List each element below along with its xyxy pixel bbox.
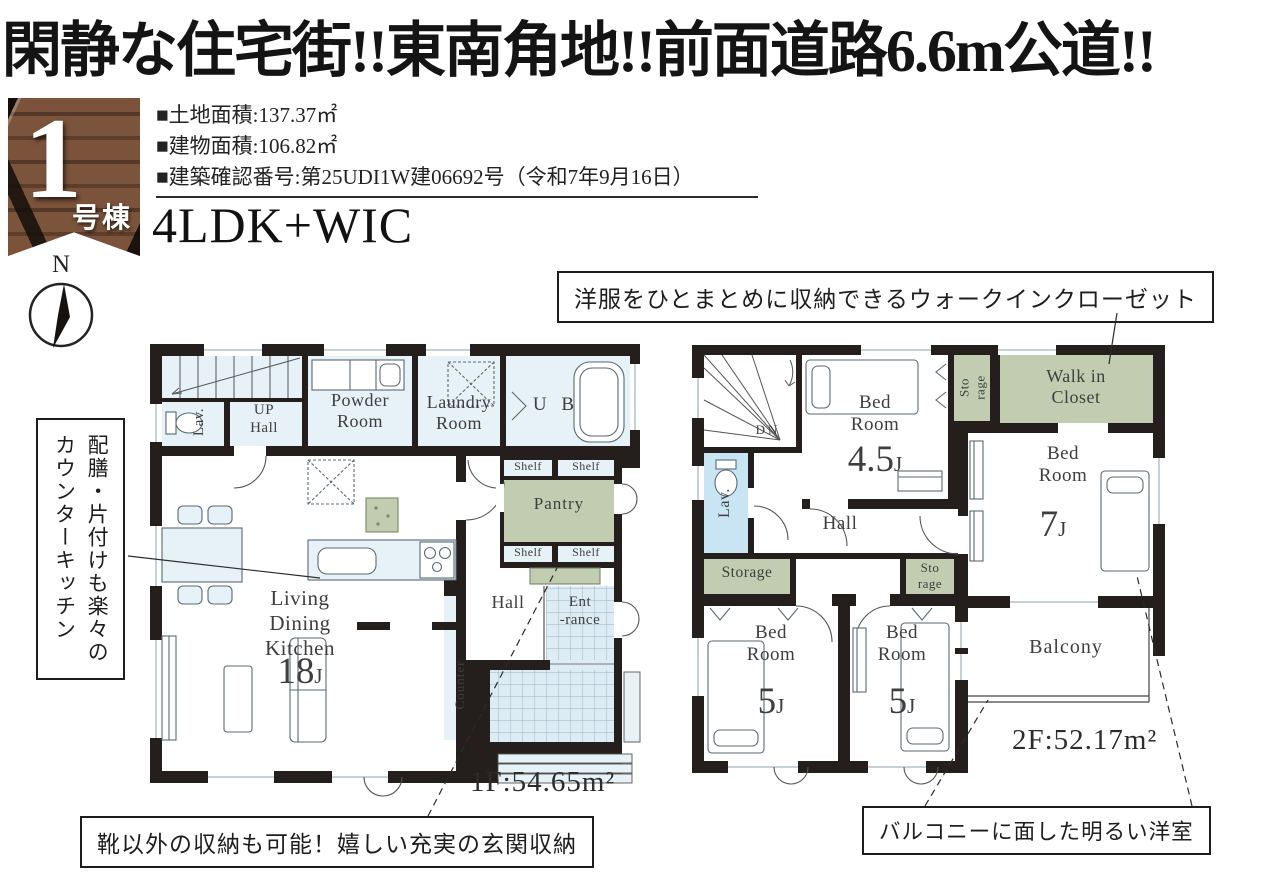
callout-counter-kitchen-line2: カウンターキッチン [48,434,81,664]
callout-bright-room: バルコニーに面した明るい洋室 [862,806,1211,855]
floor-plan-1f: Lav. UP Hall Powder Room Laundry Room U … [150,336,642,801]
label-entrance-l2: -rance [548,612,612,630]
area-1f: 1F:54.65m² [470,766,615,799]
compass-icon [26,277,96,355]
flyer-page: 閑静な住宅街!!東南角地!!前面道路6.6m公道!! 1 号棟 ■土地面積:13… [0,0,1280,889]
size-7-unit: J [1058,517,1066,541]
size-5l-number: 5 [758,681,777,722]
label-hall-2f: Hall [800,513,880,535]
property-specs: ■土地面積:137.37㎡ ■建物面積:106.82㎡ ■建築確認番号:第25U… [156,100,758,198]
label-ub: U B [506,394,606,416]
label-storage-left: Storage [704,564,790,582]
callout-walk-in-closet: 洋服をひとまとめに収納できるウォークインクローゼット [557,271,1214,323]
label-shelf-br: Shelf [558,545,614,559]
label-entrance-l1: Ent [548,594,612,612]
label-powder-room: Powder Room [308,390,412,432]
ldk-size-number: 18 [277,651,314,692]
label-lav-1f: Lav. [191,397,231,447]
label-bedroom-5l: Bed Room [736,622,806,667]
label-lav-2f: Lav. [716,478,736,528]
spec-land-area: ■土地面積:137.37㎡ [156,100,758,131]
label-walk-in-closet: Walk in Closet [1021,366,1131,408]
label-counter: Counter [452,640,472,730]
headline: 閑静な住宅街!!東南角地!!前面道路6.6m公道!! [2,2,1280,89]
floor-plan-2f: DN Bed Room 4.5J Sto rage Walk in Closet… [688,338,1168,790]
size-7-number: 7 [1040,504,1059,545]
label-shelf-tl: Shelf [504,459,552,473]
compass-north-label: N [26,252,96,277]
callout-counter-kitchen: 配膳・片付けも楽々の カウンターキッチン [36,418,125,680]
label-balcony: Balcony [986,636,1146,660]
label-size-5c: 5J [847,680,957,724]
size-5c-unit: J [907,694,915,718]
area-2f: 2F:52.17m² [1012,724,1157,757]
label-ldk-size: 18J [245,650,355,694]
label-bedroom-5c: Bed Room [867,622,937,667]
label-shelf-tr: Shelf [558,459,614,473]
label-bedroom-7: Bed Room [1028,443,1098,488]
label-size-45: 4.5J [820,438,930,482]
label-up-hall: UP Hall [228,402,300,437]
callout-counter-kitchen-line1: 配膳・片付けも楽々の [81,434,114,664]
size-45-unit: J [894,452,902,476]
label-bedroom-45: Bed Room [840,392,910,437]
label-up: UP [228,402,300,420]
spec-building-area: ■建物面積:106.82㎡ [156,131,758,162]
label-storage-mid: Sto rage [912,560,948,591]
label-up-hall-text: Hall [228,420,300,438]
label-dn: DN [746,422,790,437]
ldk-size-unit: J [314,664,322,688]
compass: N [26,252,96,360]
callout-entrance-storage: 靴以外の収納も可能！嬉しい充実の玄関収納 [80,816,594,868]
size-45-number: 4.5 [848,439,894,480]
label-shelf-bl: Shelf [504,545,552,559]
size-5c-number: 5 [889,681,908,722]
label-hall-1f: Hall [468,592,548,613]
label-size-5l: 5J [716,680,826,724]
label-entrance: Ent -rance [548,594,612,629]
building-badge: 1 号棟 [8,98,140,256]
label-storage-top: Sto rage [956,371,987,405]
layout-type: 4LDK+WIC [152,196,413,254]
spec-permit-number: ■建築確認番号:第25UDI1W建06692号（令和7年9月16日） [156,162,758,198]
label-laundry-room: Laundry Room [418,392,500,434]
badge-suffix: 号棟 [72,196,132,236]
size-5l-unit: J [776,694,784,718]
label-size-7: 7J [988,503,1118,547]
label-pantry: Pantry [504,494,614,514]
